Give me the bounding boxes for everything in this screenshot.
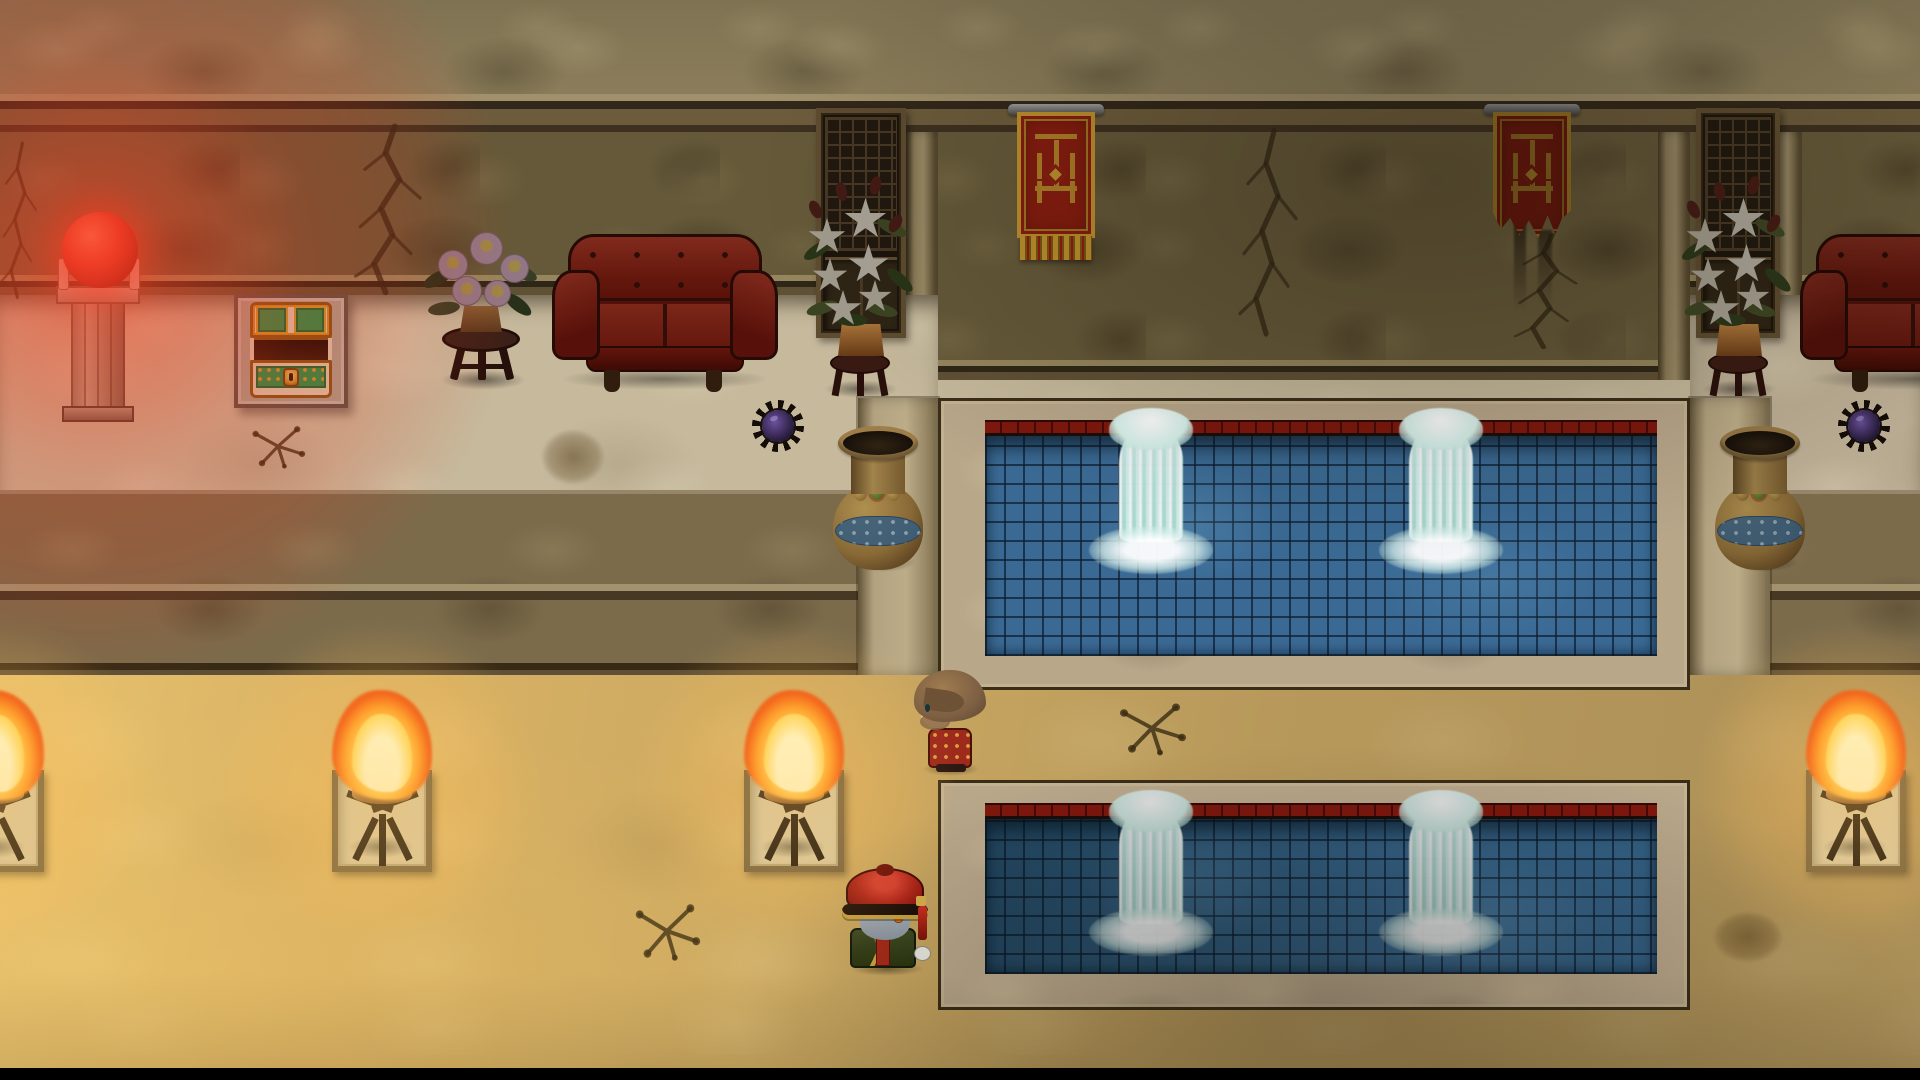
chest-lid-panel bbox=[296, 308, 324, 332]
fountain-upper-right bbox=[1385, 410, 1497, 582]
lily-plant-right bbox=[1682, 156, 1794, 400]
water-splash bbox=[1379, 526, 1503, 574]
lily-bloom bbox=[1690, 258, 1726, 294]
brazier-leg bbox=[379, 814, 386, 866]
couch-leg bbox=[706, 370, 722, 392]
flower-bud bbox=[1746, 175, 1761, 196]
torch-2 bbox=[326, 698, 438, 878]
purple-core bbox=[1848, 410, 1880, 442]
glowing-orb-pedestal[interactable] bbox=[50, 198, 146, 426]
pink-blossom bbox=[452, 276, 482, 306]
flower-bud bbox=[868, 175, 883, 196]
couch-left bbox=[552, 234, 778, 394]
water-splash bbox=[1089, 908, 1213, 956]
water-spray-top bbox=[1399, 408, 1483, 450]
wall-banner-right bbox=[1490, 104, 1574, 256]
red-orb[interactable] bbox=[62, 212, 138, 288]
chest-interior bbox=[250, 338, 332, 360]
floor-crack-walkway bbox=[1112, 696, 1192, 762]
couch-leg bbox=[604, 370, 620, 392]
pink-flower-table bbox=[414, 214, 548, 400]
crack-lines-icon bbox=[1222, 126, 1322, 351]
couch-armrest bbox=[552, 270, 600, 360]
dirt-spot-lower-right bbox=[1714, 912, 1782, 962]
couch-front-panel bbox=[586, 346, 744, 372]
lily-bloom bbox=[812, 258, 848, 294]
water-spray-top bbox=[1399, 790, 1483, 832]
banner-cloth bbox=[1017, 112, 1095, 238]
npc-eye bbox=[925, 704, 930, 712]
leaf bbox=[427, 300, 460, 317]
hat-tassel bbox=[918, 906, 927, 940]
floor-crack-lower-left bbox=[628, 896, 706, 968]
flower-bud bbox=[1684, 199, 1702, 221]
lily-bloom bbox=[848, 244, 889, 285]
wall-crack-far-left bbox=[0, 140, 52, 310]
npc-man-red-robe[interactable] bbox=[912, 670, 990, 778]
flame-core bbox=[1826, 714, 1886, 792]
banner-tatters bbox=[1508, 222, 1560, 318]
fountain-lower-right bbox=[1385, 792, 1497, 964]
fountain-lower-left bbox=[1095, 792, 1207, 964]
crack-lines-icon bbox=[246, 420, 310, 474]
flame-core bbox=[764, 714, 824, 792]
flower-bud bbox=[1712, 181, 1727, 202]
brazier-leg bbox=[791, 814, 798, 866]
chest-lock bbox=[283, 368, 299, 387]
floor-crack-upper-left bbox=[246, 420, 310, 474]
qing-hat-brim bbox=[842, 904, 928, 919]
pedestal-column bbox=[71, 304, 125, 408]
spike-ball-right bbox=[1838, 400, 1890, 452]
water-spray-top bbox=[1109, 408, 1193, 450]
banner-cloth bbox=[1493, 112, 1571, 238]
hat-tassel-knot bbox=[916, 896, 926, 906]
leaf bbox=[1762, 265, 1794, 295]
jiangshi-player-character[interactable] bbox=[838, 866, 936, 976]
couch-right bbox=[1800, 234, 1920, 394]
pink-blossom bbox=[484, 280, 511, 307]
treasure-chest[interactable] bbox=[234, 294, 348, 408]
crack-lines-icon bbox=[0, 140, 52, 310]
water-splash bbox=[1379, 908, 1503, 956]
jiangshi-hand bbox=[914, 946, 931, 961]
vase-blue-band bbox=[835, 516, 921, 546]
table-brace bbox=[456, 364, 508, 369]
torch-1 bbox=[0, 698, 50, 878]
pedestal-base bbox=[62, 406, 134, 422]
game-viewport[interactable] bbox=[0, 0, 1920, 1080]
vase-opening bbox=[843, 431, 913, 455]
letterbox-bottom-bar bbox=[0, 1068, 1920, 1080]
spike-ball-left bbox=[752, 400, 804, 452]
torch-3 bbox=[738, 698, 850, 878]
qing-hat-knob bbox=[876, 864, 894, 876]
torch-4 bbox=[1800, 698, 1912, 878]
entity-layer bbox=[0, 0, 1920, 1080]
pedestal-cap bbox=[56, 286, 140, 304]
banner-fringe bbox=[1020, 236, 1092, 260]
wall-crack-center bbox=[1222, 126, 1322, 351]
water-spray-top bbox=[1109, 790, 1193, 832]
crack-lines-icon bbox=[1112, 696, 1192, 762]
lily-plant-left bbox=[804, 156, 916, 400]
leaf bbox=[884, 265, 916, 295]
brazier-leg bbox=[1853, 814, 1860, 866]
vase-right bbox=[1712, 420, 1808, 578]
wall-banner-left bbox=[1014, 104, 1098, 270]
flower-pot bbox=[460, 306, 502, 332]
npc-feet bbox=[936, 764, 966, 772]
water-splash bbox=[1089, 526, 1213, 574]
flower-pot bbox=[1716, 324, 1762, 356]
couch-armrest bbox=[1800, 270, 1848, 360]
flame-core bbox=[352, 714, 412, 792]
npc-red-robe bbox=[928, 728, 972, 768]
purple-core bbox=[762, 410, 794, 442]
vase-blue-band bbox=[1717, 516, 1803, 546]
flower-bud bbox=[806, 199, 824, 221]
pink-blossom bbox=[500, 254, 529, 283]
flower-bud bbox=[834, 181, 849, 202]
couch-leg bbox=[1852, 370, 1868, 392]
lily-bloom bbox=[1726, 244, 1767, 285]
crack-lines-icon bbox=[628, 896, 706, 968]
vase-left bbox=[830, 420, 926, 578]
flower-pot bbox=[838, 324, 884, 356]
vase-opening bbox=[1725, 431, 1795, 455]
couch-armrest bbox=[730, 270, 778, 360]
pink-blossom bbox=[470, 232, 503, 265]
dirt-spot-left bbox=[542, 430, 604, 484]
fountain-upper-left bbox=[1095, 410, 1207, 582]
chest-lid-panel bbox=[258, 308, 286, 332]
